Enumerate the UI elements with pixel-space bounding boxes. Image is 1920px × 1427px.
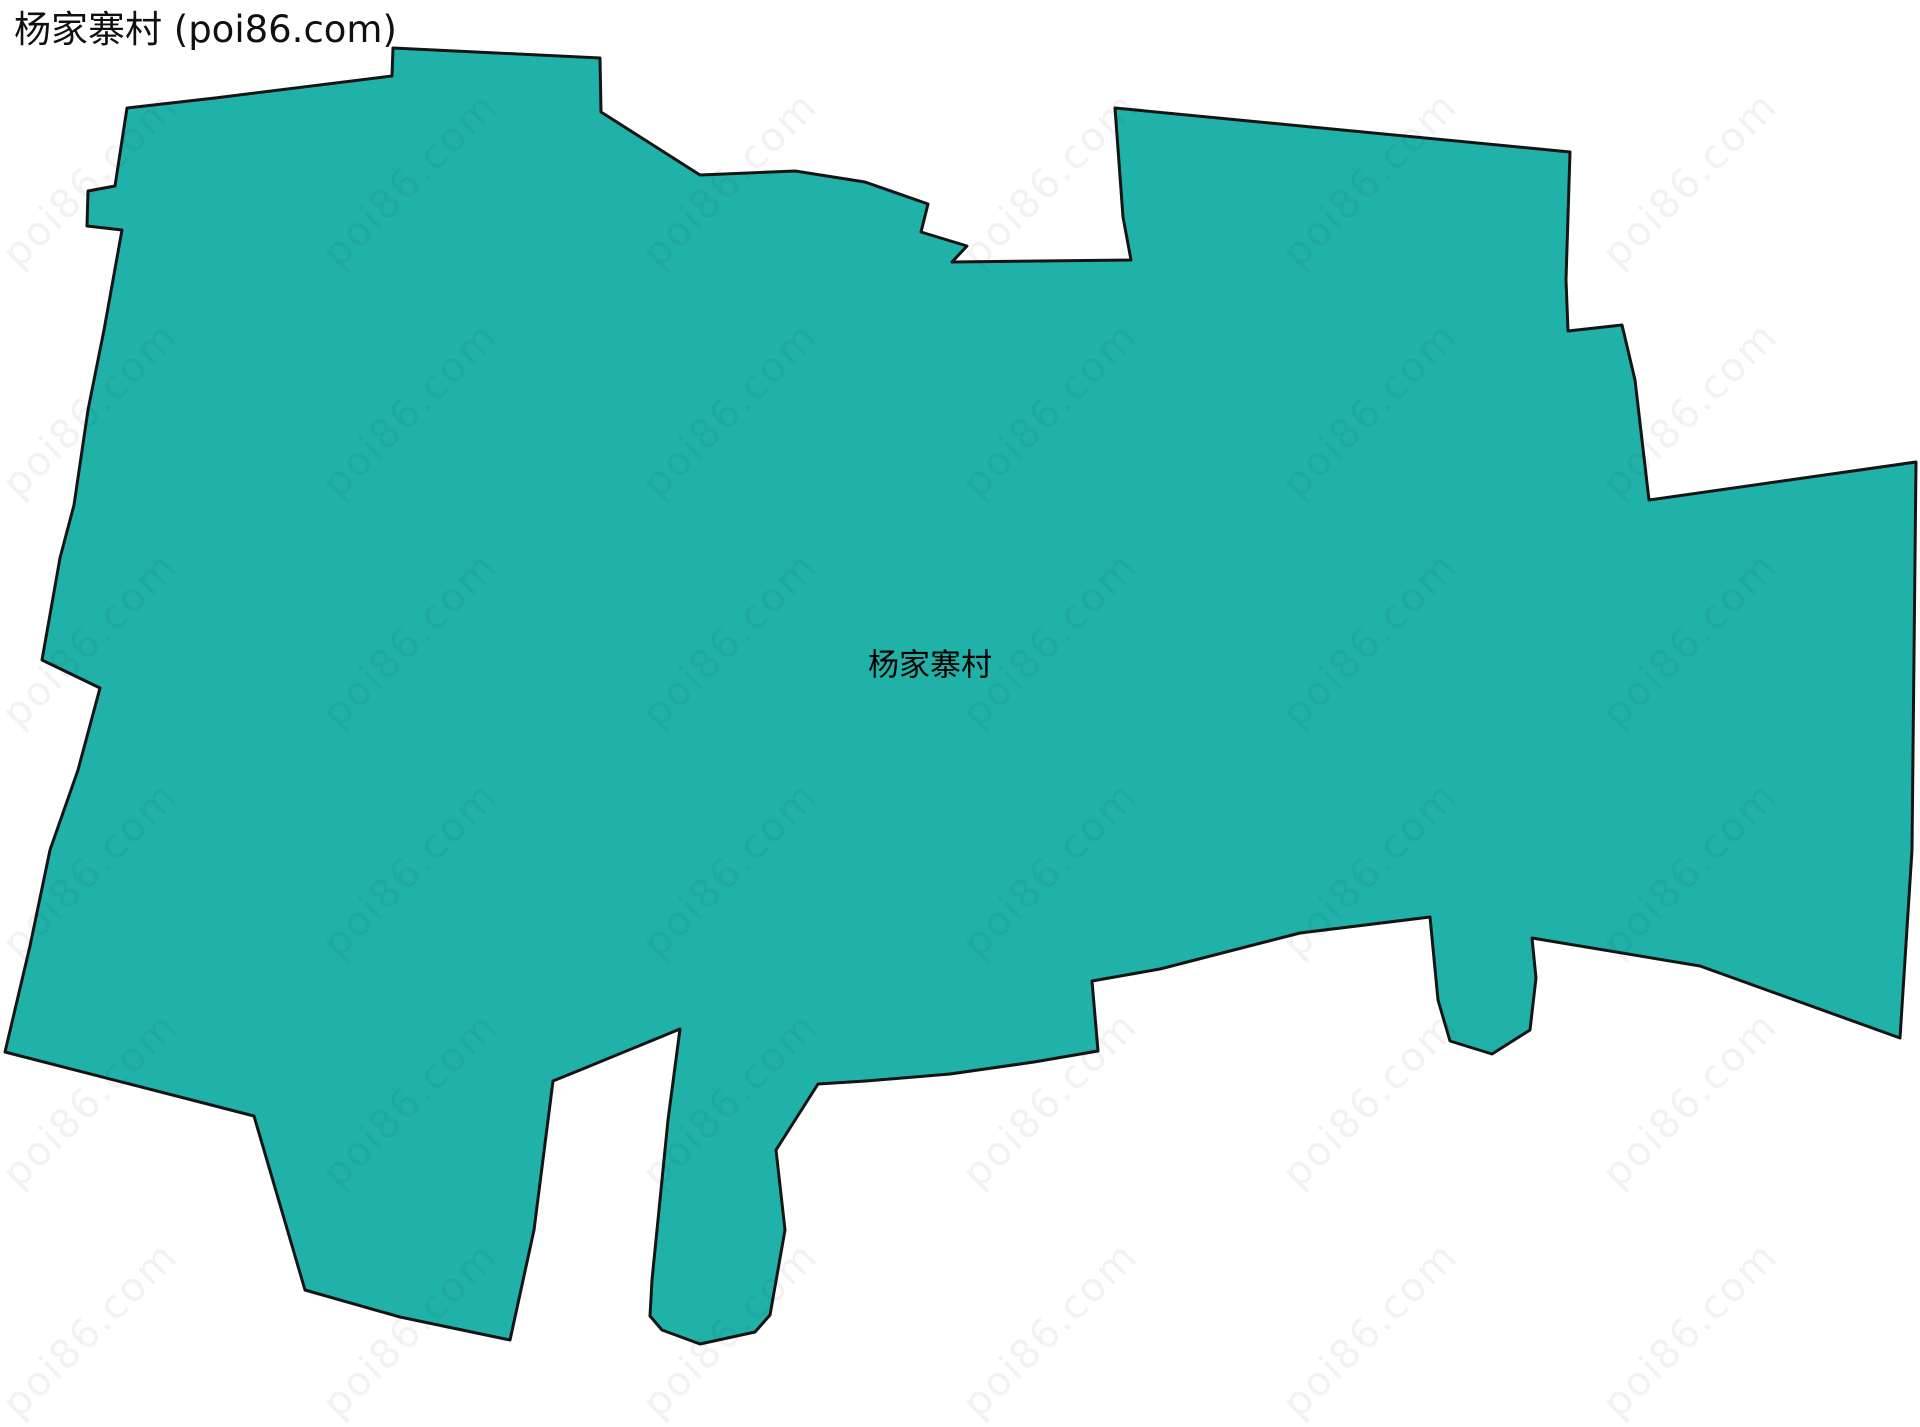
map-canvas: poi86.compoi86.compoi86.compoi86.compoi8… [0, 0, 1920, 1402]
region-label: 杨家寨村 [868, 640, 992, 685]
boundary-map-svg [0, 0, 1920, 1402]
page-title: 杨家寨村 (poi86.com) [14, 8, 397, 52]
village-boundary-polygon [5, 48, 1916, 1344]
